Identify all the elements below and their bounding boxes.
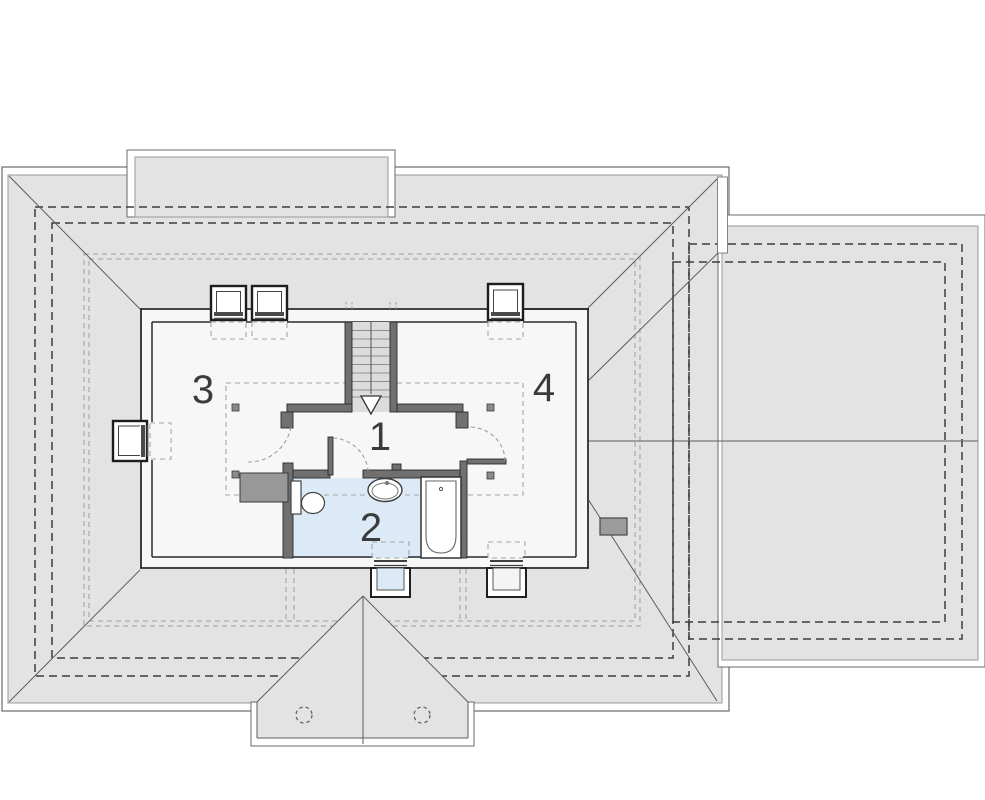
garage-roof-surface: [722, 226, 978, 660]
stairwell-wall-right: [390, 322, 397, 412]
roof-window-2-sill: [255, 312, 284, 316]
post-top-right: [487, 404, 494, 411]
floor-plan-page: 1 2 3 4: [0, 0, 985, 800]
floor-plan-canvas: 1 2 3 4: [0, 0, 985, 800]
left-window-pane: [141, 425, 145, 457]
room-label-4: 4: [533, 366, 555, 410]
hall-wall-right: [397, 404, 463, 412]
room-label-3: 3: [192, 368, 214, 412]
bathroom-north-wall-left: [288, 470, 330, 478]
hall-wall-right-pillar: [456, 412, 468, 428]
room4-door-leaf: [467, 459, 506, 464]
hall-wall-left: [287, 404, 352, 412]
bottom-dormer-1-pocket: [377, 568, 404, 590]
toilet-bowl: [302, 493, 325, 514]
toilet-cistern: [291, 481, 301, 514]
washbasin: [368, 479, 402, 502]
room-label-2: 2: [360, 506, 382, 550]
roof-window-3-sill: [491, 312, 520, 316]
roof-window-1-sill: [214, 312, 243, 316]
post-top-left: [232, 404, 239, 411]
bottom-dormer-2-pocket: [493, 568, 520, 590]
roof-chimney: [600, 518, 627, 535]
bathroom-door-leaf: [328, 437, 333, 475]
room-label-1: 1: [369, 415, 391, 459]
stairwell-wall-left: [345, 322, 352, 412]
hall-wall-left-pillar: [281, 412, 293, 428]
post-bottom-right: [487, 472, 494, 479]
top-dormer-surface: [135, 157, 388, 217]
fascia-cap: [718, 177, 728, 253]
bathroom-wall-pillar: [392, 464, 401, 470]
post-bottom-left: [232, 471, 239, 478]
bathtub: [421, 477, 461, 558]
interior-chimney-block: [240, 473, 288, 502]
